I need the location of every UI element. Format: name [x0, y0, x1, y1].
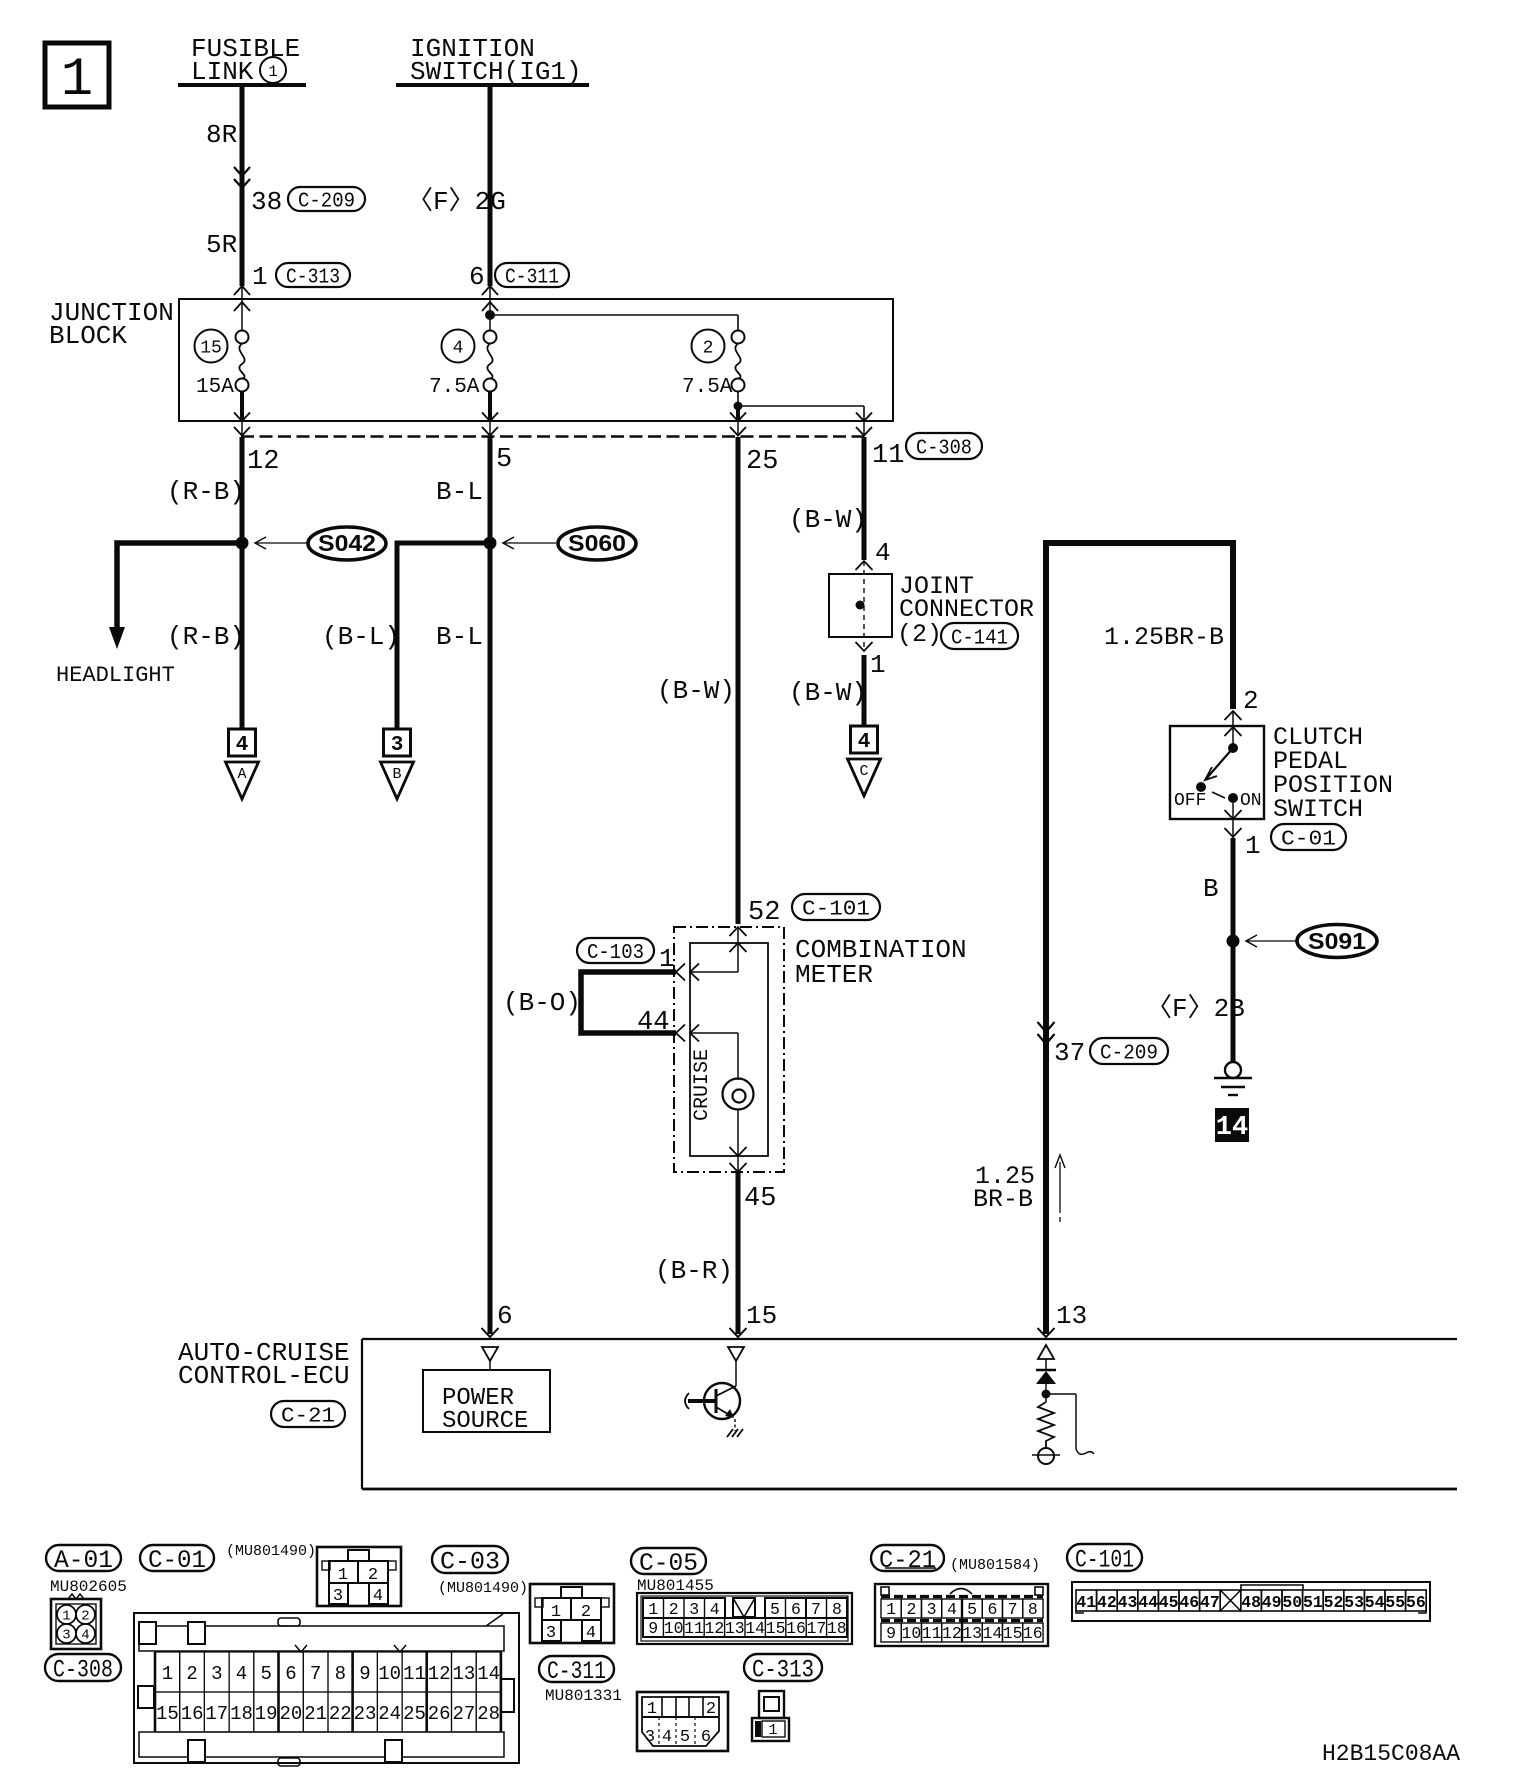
svg-text:11: 11 — [684, 1619, 704, 1638]
svg-text:C-101: C-101 — [1075, 1546, 1134, 1575]
svg-text:43: 43 — [1118, 1593, 1138, 1612]
svg-text:3: 3 — [62, 1628, 70, 1644]
svg-text:B: B — [1203, 874, 1219, 904]
svg-text:13: 13 — [452, 1663, 475, 1685]
svg-text:(MU801584): (MU801584) — [950, 1557, 1040, 1574]
svg-text:16: 16 — [181, 1703, 204, 1725]
svg-text:4: 4 — [858, 731, 871, 754]
svg-text:C-308: C-308 — [916, 438, 972, 461]
svg-text:27: 27 — [452, 1703, 475, 1725]
svg-text:4: 4 — [373, 1587, 383, 1606]
svg-text:C-01: C-01 — [1281, 829, 1336, 852]
svg-text:4: 4 — [81, 1628, 89, 1644]
svg-text:2: 2 — [581, 1603, 591, 1622]
svg-text:15: 15 — [746, 1301, 777, 1331]
svg-text:(R-B): (R-B) — [167, 622, 245, 652]
svg-text:5: 5 — [496, 445, 512, 475]
svg-text:C-03: C-03 — [440, 1548, 500, 1577]
svg-text:23: 23 — [354, 1703, 377, 1725]
svg-text:7: 7 — [811, 1600, 821, 1619]
svg-text:14: 14 — [1216, 1113, 1248, 1143]
svg-text:B: B — [392, 766, 401, 783]
svg-text:25: 25 — [746, 447, 778, 477]
svg-text:2: 2 — [1243, 686, 1259, 716]
svg-text:3: 3 — [927, 1600, 937, 1619]
svg-text:A: A — [237, 766, 246, 783]
svg-text:(2): (2) — [897, 620, 942, 649]
svg-text:3: 3 — [211, 1663, 222, 1685]
svg-text:18: 18 — [230, 1703, 253, 1725]
svg-text:37: 37 — [1054, 1038, 1085, 1068]
svg-text:C-101: C-101 — [802, 899, 870, 922]
svg-text:A-01: A-01 — [54, 1546, 113, 1575]
svg-text:C-05: C-05 — [639, 1549, 698, 1578]
svg-text:C-308: C-308 — [53, 1656, 113, 1685]
svg-text:6: 6 — [285, 1663, 296, 1685]
svg-text:45: 45 — [1159, 1593, 1179, 1612]
svg-text:4: 4 — [662, 1728, 672, 1747]
svg-text:(MU801490): (MU801490) — [438, 1580, 528, 1597]
svg-text:6: 6 — [791, 1600, 801, 1619]
svg-text:52: 52 — [1324, 1593, 1344, 1612]
svg-text:(MU801490): (MU801490) — [226, 1543, 316, 1560]
svg-text:S042: S042 — [318, 530, 376, 556]
svg-text:〈F〉2B: 〈F〉2B — [1146, 994, 1245, 1024]
svg-text:15: 15 — [766, 1619, 786, 1638]
svg-text:(B-R): (B-R) — [655, 1256, 733, 1286]
svg-text:C-21: C-21 — [879, 1546, 936, 1575]
svg-text:19: 19 — [255, 1703, 278, 1725]
svg-text:1: 1 — [252, 262, 268, 292]
svg-text:CONTROL-ECU: CONTROL-ECU — [178, 1361, 350, 1391]
svg-text:C-103: C-103 — [587, 942, 644, 965]
svg-text:SWITCH(IG1): SWITCH(IG1) — [410, 57, 582, 87]
svg-text:(B-W): (B-W) — [789, 678, 867, 708]
svg-text:15: 15 — [156, 1703, 179, 1725]
svg-text:SWITCH: SWITCH — [1273, 795, 1363, 824]
svg-text:H2B15C08AA: H2B15C08AA — [1322, 1741, 1460, 1767]
svg-text:14: 14 — [982, 1624, 1002, 1643]
svg-text:S060: S060 — [568, 530, 626, 556]
svg-text:44: 44 — [637, 1008, 669, 1038]
svg-text:1: 1 — [62, 1609, 70, 1625]
svg-text:56: 56 — [1406, 1593, 1426, 1612]
svg-text:C-209: C-209 — [1100, 1043, 1158, 1066]
svg-text:C: C — [859, 763, 868, 780]
svg-text:1: 1 — [1245, 831, 1261, 861]
svg-text:1: 1 — [551, 1603, 561, 1622]
svg-text:〈F〉2G: 〈F〉2G — [407, 187, 506, 217]
svg-text:7: 7 — [310, 1663, 321, 1685]
svg-text:11: 11 — [872, 441, 904, 471]
svg-text:4: 4 — [236, 734, 249, 757]
svg-text:52: 52 — [748, 898, 780, 928]
svg-text:6: 6 — [701, 1728, 711, 1747]
svg-text:49: 49 — [1262, 1593, 1282, 1612]
svg-text:5R: 5R — [206, 230, 237, 260]
svg-text:(B-L): (B-L) — [322, 622, 400, 652]
svg-text:C-313: C-313 — [286, 267, 340, 290]
svg-text:48: 48 — [1241, 1593, 1261, 1612]
svg-text:47: 47 — [1200, 1593, 1220, 1612]
svg-text:1: 1 — [61, 50, 93, 111]
svg-text:12: 12 — [428, 1663, 451, 1685]
svg-text:6: 6 — [469, 262, 485, 292]
svg-text:15: 15 — [1003, 1624, 1023, 1643]
svg-text:17: 17 — [806, 1619, 826, 1638]
svg-text:2: 2 — [706, 1700, 716, 1719]
svg-text:3: 3 — [546, 1624, 556, 1643]
svg-text:50: 50 — [1282, 1593, 1302, 1612]
svg-text:53: 53 — [1344, 1593, 1364, 1612]
svg-text:46: 46 — [1179, 1593, 1199, 1612]
svg-text:11: 11 — [403, 1663, 426, 1685]
svg-text:51: 51 — [1303, 1593, 1323, 1612]
svg-text:4: 4 — [586, 1624, 596, 1643]
svg-text:24: 24 — [378, 1703, 401, 1725]
svg-text:15: 15 — [200, 338, 222, 358]
svg-text:41: 41 — [1076, 1593, 1096, 1612]
svg-text:2: 2 — [81, 1609, 89, 1625]
svg-text:16: 16 — [786, 1619, 806, 1638]
svg-text:3: 3 — [391, 734, 404, 757]
svg-text:MU802605: MU802605 — [50, 1578, 127, 1596]
svg-text:CRUISE: CRUISE — [691, 1049, 714, 1121]
svg-text:SOURCE: SOURCE — [442, 1408, 528, 1435]
svg-text:18: 18 — [827, 1619, 847, 1638]
svg-text:1.25BR-B: 1.25BR-B — [1104, 623, 1224, 652]
svg-text:15A: 15A — [196, 376, 234, 399]
svg-text:B-L: B-L — [436, 622, 483, 652]
svg-text:BLOCK: BLOCK — [49, 321, 127, 351]
svg-text:11: 11 — [922, 1624, 942, 1643]
svg-text:3: 3 — [645, 1728, 655, 1747]
svg-text:13: 13 — [725, 1619, 745, 1638]
svg-text:10: 10 — [664, 1619, 684, 1638]
svg-text:4: 4 — [453, 338, 464, 358]
svg-text:12: 12 — [247, 447, 279, 477]
svg-text:OFF: OFF — [1174, 791, 1206, 811]
svg-text:S091: S091 — [1308, 928, 1366, 954]
svg-text:(B-W): (B-W) — [789, 505, 867, 535]
svg-text:10: 10 — [378, 1663, 401, 1685]
svg-text:1: 1 — [648, 1600, 658, 1619]
svg-text:(B-O): (B-O) — [503, 988, 581, 1018]
svg-text:9: 9 — [359, 1663, 370, 1685]
svg-text:BR-B: BR-B — [973, 1185, 1033, 1214]
svg-text:C-01: C-01 — [148, 1546, 206, 1575]
svg-text:2: 2 — [703, 338, 714, 358]
svg-text:B-L: B-L — [436, 477, 483, 507]
svg-text:5: 5 — [770, 1600, 780, 1619]
svg-text:4: 4 — [947, 1600, 957, 1619]
svg-text:21: 21 — [304, 1703, 327, 1725]
svg-text:C-209: C-209 — [298, 191, 355, 214]
svg-text:13: 13 — [1056, 1301, 1087, 1331]
svg-text:C-311: C-311 — [505, 267, 559, 290]
svg-text:9: 9 — [886, 1624, 896, 1643]
svg-text:7: 7 — [1008, 1600, 1018, 1619]
svg-text:12: 12 — [942, 1624, 962, 1643]
svg-text:HEADLIGHT: HEADLIGHT — [56, 663, 175, 688]
svg-text:1: 1 — [768, 1722, 777, 1739]
svg-text:1: 1 — [268, 63, 278, 81]
svg-text:5: 5 — [260, 1663, 271, 1685]
svg-text:4: 4 — [710, 1600, 720, 1619]
svg-text:5: 5 — [967, 1600, 977, 1619]
svg-text:55: 55 — [1385, 1593, 1405, 1612]
svg-text:C-311: C-311 — [547, 1657, 606, 1686]
svg-text:3: 3 — [333, 1587, 343, 1606]
svg-text:20: 20 — [279, 1703, 302, 1725]
svg-text:2: 2 — [186, 1663, 197, 1685]
svg-text:8: 8 — [1028, 1600, 1038, 1619]
svg-text:7.5A: 7.5A — [429, 376, 480, 399]
svg-text:28: 28 — [477, 1703, 500, 1725]
svg-text:44: 44 — [1138, 1593, 1158, 1612]
svg-text:METER: METER — [795, 960, 873, 990]
svg-text:2: 2 — [368, 1566, 378, 1585]
svg-text:ON: ON — [1240, 791, 1262, 811]
svg-text:10: 10 — [901, 1624, 921, 1643]
svg-text:38: 38 — [251, 187, 282, 217]
svg-text:1: 1 — [162, 1663, 173, 1685]
svg-text:3: 3 — [689, 1600, 699, 1619]
svg-text:25: 25 — [403, 1703, 426, 1725]
svg-text:8R: 8R — [206, 120, 237, 150]
svg-text:MU801331: MU801331 — [545, 1687, 622, 1705]
svg-text:8: 8 — [335, 1663, 346, 1685]
svg-text:2: 2 — [906, 1600, 916, 1619]
svg-text:14: 14 — [477, 1663, 500, 1685]
svg-text:(B-W): (B-W) — [657, 676, 735, 706]
svg-text:54: 54 — [1365, 1593, 1385, 1612]
svg-text:C-141: C-141 — [951, 628, 1008, 651]
svg-text:1: 1 — [647, 1700, 657, 1719]
svg-text:6: 6 — [497, 1301, 513, 1331]
svg-text:42: 42 — [1097, 1593, 1117, 1612]
svg-text:1: 1 — [338, 1566, 348, 1585]
svg-text:8: 8 — [832, 1600, 842, 1619]
svg-text:C-313: C-313 — [752, 1656, 814, 1685]
svg-text:1: 1 — [870, 650, 886, 680]
svg-text:13: 13 — [962, 1624, 982, 1643]
svg-text:16: 16 — [1023, 1624, 1043, 1643]
svg-text:C-21: C-21 — [281, 1406, 335, 1429]
svg-text:LINK: LINK — [191, 57, 254, 87]
svg-text:4: 4 — [875, 538, 891, 568]
svg-text:26: 26 — [428, 1703, 451, 1725]
svg-text:2: 2 — [669, 1600, 679, 1619]
svg-text:12: 12 — [704, 1619, 724, 1638]
svg-text:6: 6 — [987, 1600, 997, 1619]
svg-text:5: 5 — [680, 1728, 690, 1747]
svg-text:22: 22 — [329, 1703, 352, 1725]
svg-text:1: 1 — [886, 1600, 896, 1619]
svg-text:9: 9 — [648, 1619, 658, 1638]
svg-text:14: 14 — [745, 1619, 765, 1638]
svg-text:(R-B): (R-B) — [167, 477, 245, 507]
svg-text:17: 17 — [205, 1703, 228, 1725]
svg-text:4: 4 — [236, 1663, 247, 1685]
svg-text:45: 45 — [744, 1184, 776, 1214]
svg-text:7.5A: 7.5A — [682, 376, 733, 399]
